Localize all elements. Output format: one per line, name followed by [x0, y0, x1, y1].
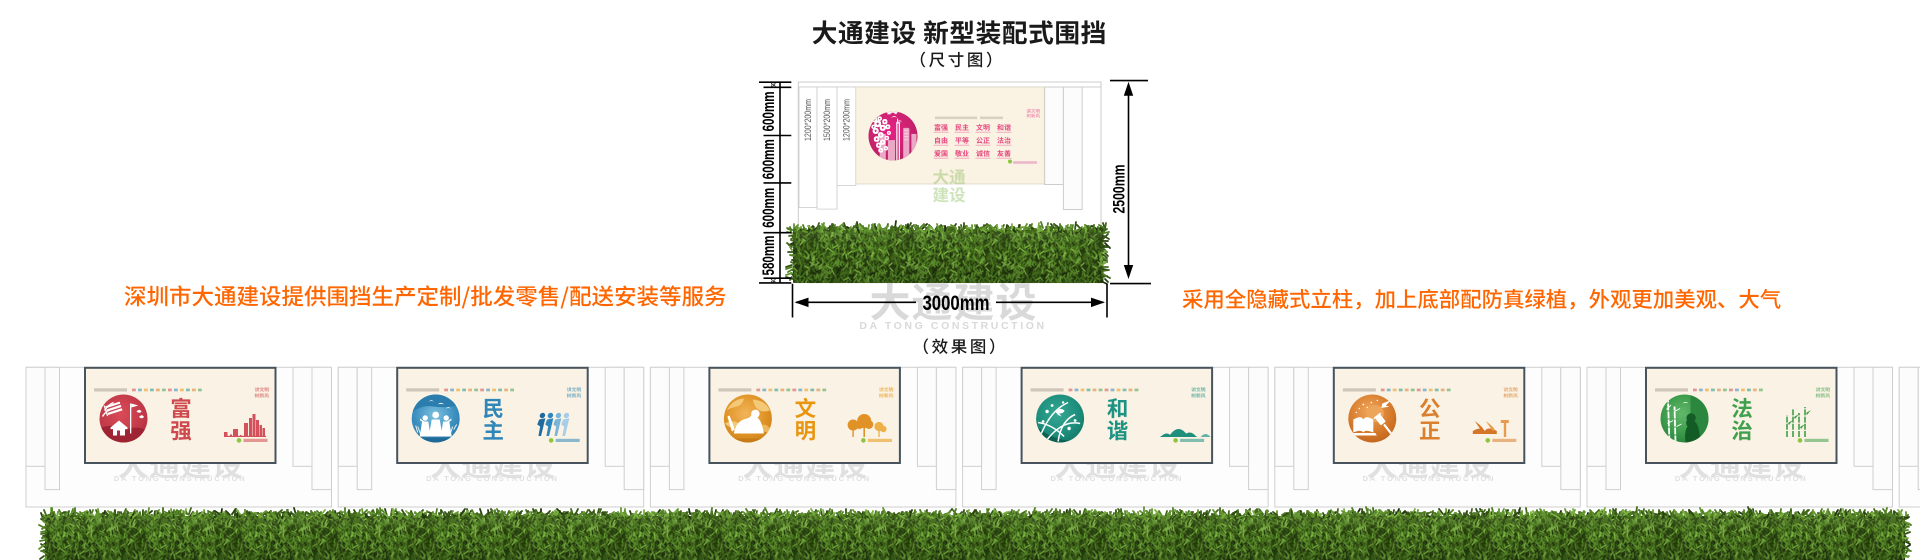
svg-text:DA TONG CONSTRUCTION: DA TONG CONSTRUCTION — [426, 474, 559, 483]
svg-text:1500*200mm: 1500*200mm — [822, 99, 832, 141]
svg-text:600mm: 600mm — [760, 188, 778, 228]
svg-text:DA TONG CONSTRUCTION: DA TONG CONSTRUCTION — [738, 474, 871, 483]
svg-text:DA TONG CONSTRUCTION: DA TONG CONSTRUCTION — [1363, 474, 1496, 483]
svg-text:1200*200mm: 1200*200mm — [803, 99, 813, 141]
svg-text:DA TONG CONSTRUCTION: DA TONG CONSTRUCTION — [1675, 474, 1808, 483]
svg-text:2500mm: 2500mm — [1110, 165, 1129, 214]
svg-text:DA TONG CONSTRUCTION: DA TONG CONSTRUCTION — [859, 320, 1046, 332]
svg-text:DA TONG CONSTRUCTION: DA TONG CONSTRUCTION — [1050, 474, 1183, 483]
svg-text:580mm: 580mm — [760, 236, 778, 276]
svg-text:60: 60 — [771, 278, 778, 284]
svg-text:600mm: 600mm — [760, 139, 778, 179]
svg-text:60: 60 — [771, 82, 778, 88]
svg-text:600mm: 600mm — [760, 91, 778, 131]
svg-text:3000mm: 3000mm — [923, 292, 990, 315]
svg-text:DA TONG CONSTRUCTION: DA TONG CONSTRUCTION — [114, 474, 247, 483]
svg-text:1200*200mm: 1200*200mm — [842, 99, 852, 141]
